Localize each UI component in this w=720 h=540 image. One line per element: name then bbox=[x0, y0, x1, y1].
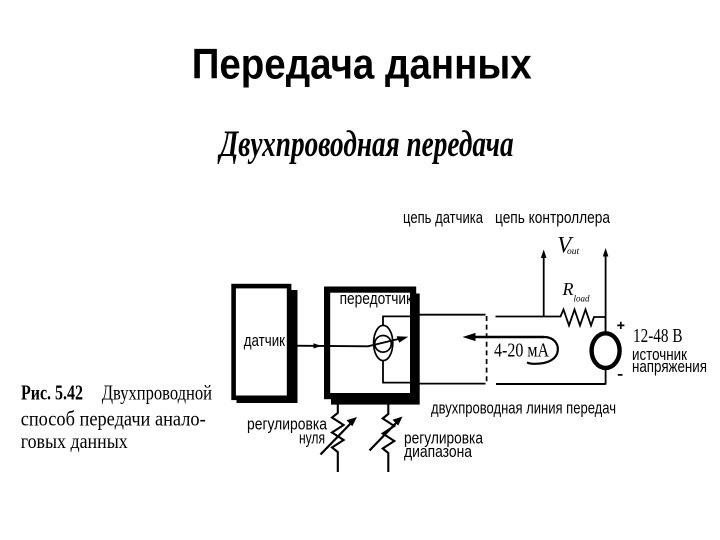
svg-text:Передача данных: Передача данных bbox=[192, 41, 532, 88]
svg-text:4-20 мА: 4-20 мА bbox=[494, 341, 549, 362]
svg-text:out: out bbox=[567, 247, 580, 257]
svg-text:Рис. 5.42: Рис. 5.42 bbox=[21, 381, 83, 405]
svg-text:load: load bbox=[574, 294, 591, 304]
svg-text:передотчик: передотчик bbox=[340, 290, 413, 308]
svg-text:Двухпроводная передача: Двухпроводная передача bbox=[217, 124, 513, 165]
svg-text:R: R bbox=[562, 279, 574, 299]
svg-text:диапазона: диапазона bbox=[404, 443, 473, 461]
svg-text:датчик: датчик bbox=[244, 332, 286, 350]
svg-text:напряжения: напряжения bbox=[632, 358, 707, 376]
svg-text:говых данных: говых данных bbox=[21, 429, 128, 453]
svg-text:12-48 В: 12-48 В bbox=[633, 326, 683, 347]
svg-text:нуля: нуля bbox=[299, 430, 325, 448]
svg-text:двухпроводная линия передач: двухпроводная линия передач bbox=[431, 400, 616, 418]
svg-text:цепь датчика: цепь датчика bbox=[403, 209, 484, 227]
svg-text:Двухпроводной: Двухпроводной bbox=[102, 381, 212, 405]
svg-text:цепь контроллера: цепь контроллера bbox=[495, 209, 611, 227]
svg-text:способ передачи анало-: способ передачи анало- bbox=[21, 406, 206, 430]
